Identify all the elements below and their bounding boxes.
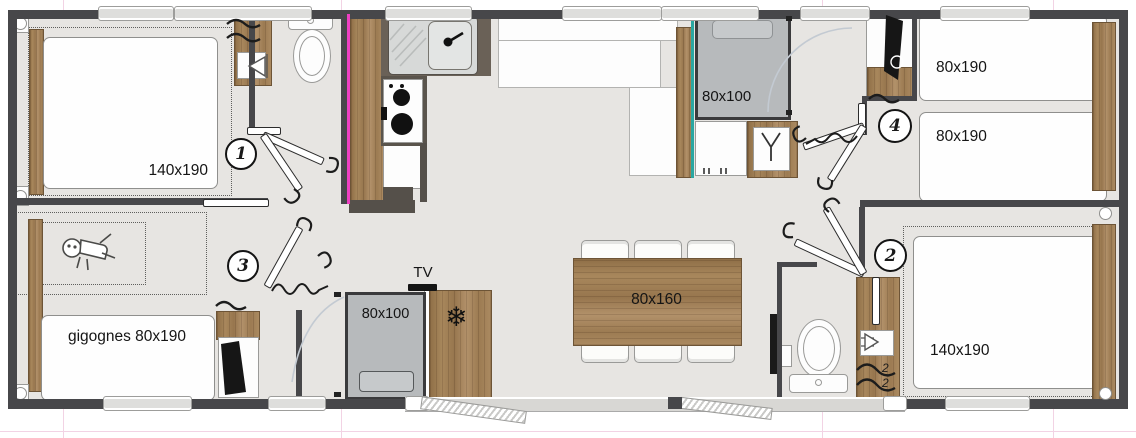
wall-lamp-icon [1099,387,1112,400]
table-size-label: 80x160 [573,291,740,309]
hob-burner-icon [393,89,410,106]
shower2-door-seal [359,371,414,392]
window [945,396,1030,411]
wall-room4-room2 [860,200,1128,207]
bay-door-divider [668,397,682,409]
room4-number: 4 [889,116,901,136]
washbasin-unit [695,121,747,176]
wall-bathroom-hall-h [862,96,917,101]
floor-plan: 140x190 1 80x160 TV ❄ 80x100 80x100 [0,0,1136,438]
wall-closet-room4 [912,12,917,101]
window [103,396,192,411]
wardrobe-door [872,277,880,325]
kitchen-tall-cabinet [350,14,384,204]
bed4-top-size-label: 80x190 [936,59,987,77]
tv-label: TV [404,264,442,281]
bay-door-cap [883,396,907,411]
kitchen-sink-bowl [428,21,472,70]
wall-mirror-icon [770,314,777,374]
teal-partition-line [691,14,694,178]
bed4-bottom-size-label: 80x190 [936,128,987,146]
toilet2-knob [815,379,822,386]
magenta-partition-line [347,14,350,204]
window [385,6,472,21]
tv-icon [408,284,437,291]
kitchen-counter-edge [420,143,427,202]
room2-number: 2 [885,246,897,266]
room2-number-badge: 2 [874,239,907,272]
bed2-headboard [1092,224,1116,403]
room3-door-leaf [203,199,269,207]
bed3-size-label: gigognes 80x190 [47,328,207,346]
shower1-size-label: 80x100 [702,88,782,105]
vanity-unit [218,337,259,398]
outer-wall-right [1119,10,1128,409]
kitchen-lower-cabinet [383,143,422,189]
bed4-top-single [919,14,1107,101]
shower2-size-label: 80x100 [349,306,422,322]
wardrobe-shelf [860,330,894,356]
washbasin-sink-icon [753,127,790,171]
hob-burner-icon [391,113,413,135]
shower1-bench [712,20,773,39]
wc2-shelf [781,345,792,367]
wall-room3-hall [296,310,302,406]
room3-number-badge: 3 [227,250,259,282]
room1-number-badge: 1 [225,138,257,170]
room3-number: 3 [237,256,249,276]
wall-wc2-top [777,262,817,267]
room4-number-badge: 4 [878,109,912,143]
toilet2-bowl-inner [803,326,835,371]
window [98,6,174,21]
window [174,6,312,21]
entry-door-threshold [268,396,326,411]
vanity-cabinet-top [216,311,260,340]
window [562,6,662,21]
wall-lamp-icon [1099,207,1112,220]
freezer-snowflake-icon: ❄ [445,302,468,333]
sofa-seat [498,40,661,88]
bed1-headboard [29,29,44,195]
toilet-bowl-inner [299,36,325,76]
bed2-size-label: 140x190 [930,342,989,360]
guide-line [0,431,1136,432]
room1-number: 1 [235,144,247,164]
kitchen-counter-base [349,200,415,213]
window [661,6,759,21]
window [940,6,1030,21]
outer-wall-left [8,10,17,409]
wall-wc2-left [777,262,782,405]
window [800,6,870,21]
sofa-side-seat [629,87,677,176]
baby-cot-mattress [40,222,146,285]
bed4-headboard [1092,22,1116,191]
bed2-double-bed [913,236,1098,389]
bed4-bottom-single [919,112,1107,202]
bed1-size-label: 140x190 [100,162,208,180]
wall-room1-wc [249,14,255,134]
